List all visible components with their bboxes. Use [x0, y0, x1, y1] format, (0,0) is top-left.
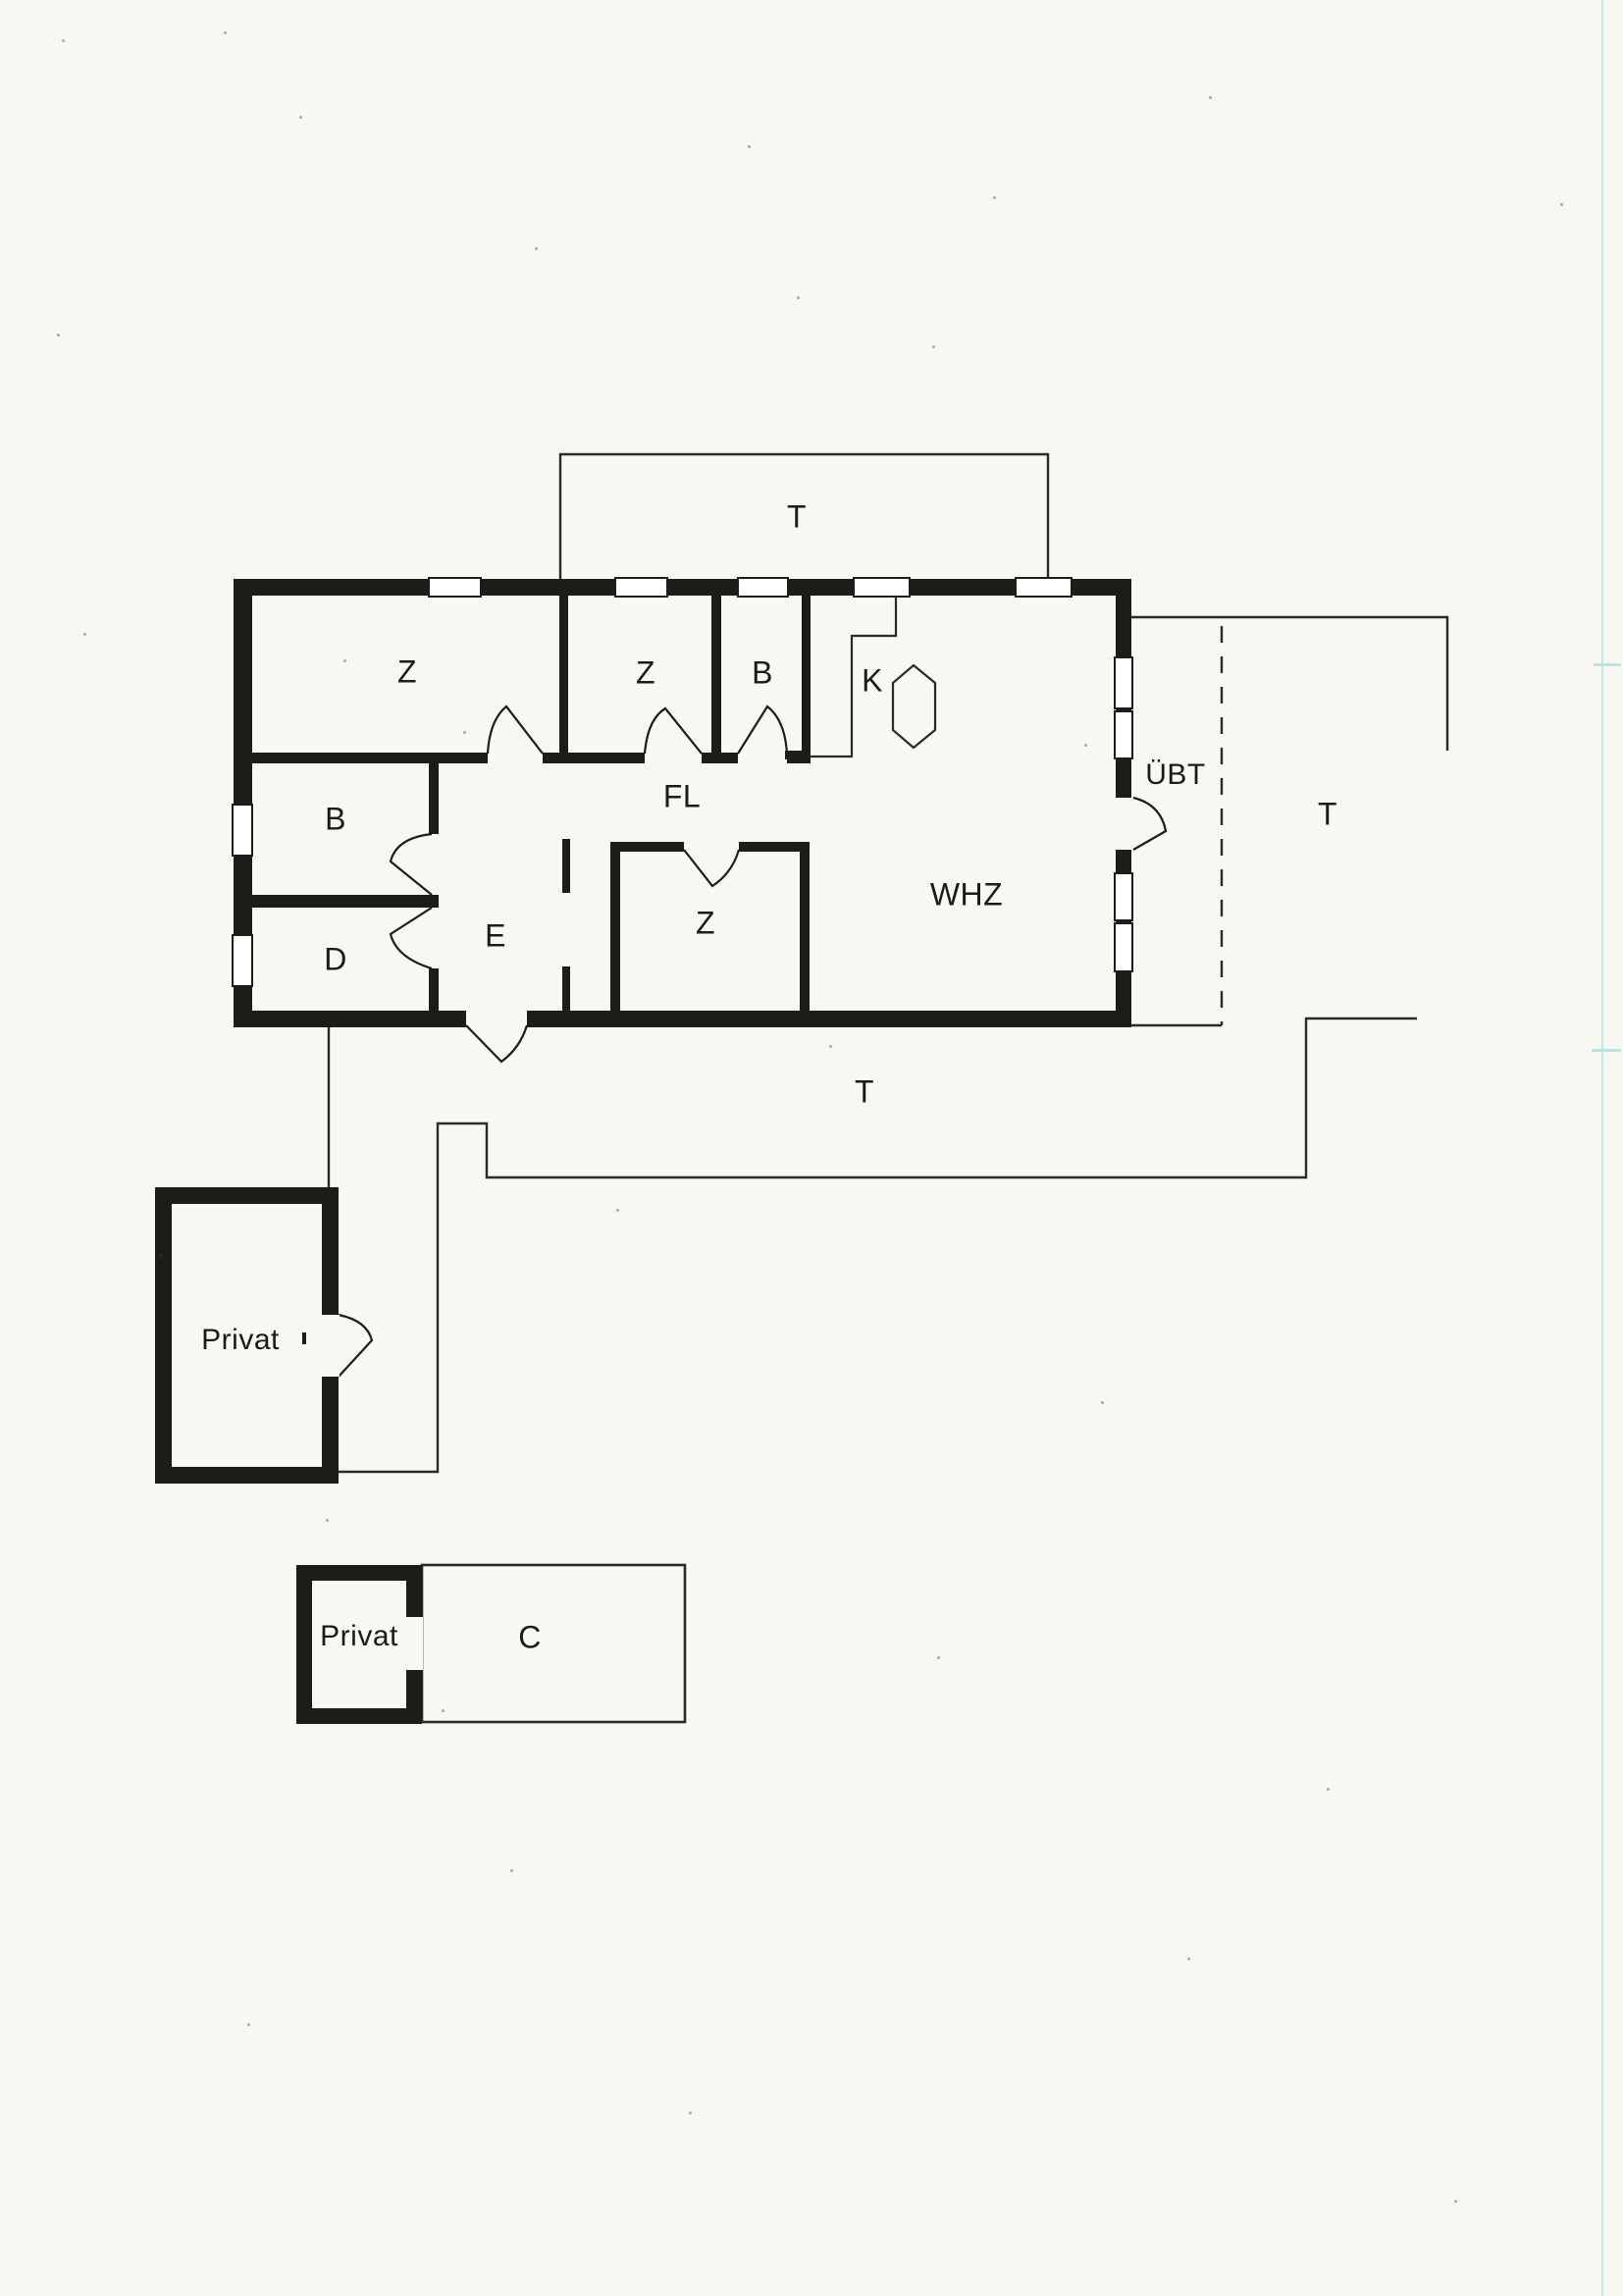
door-swing-d	[391, 908, 432, 968]
label-room-z3: Z	[696, 906, 715, 942]
wall-exterior-top	[234, 579, 1131, 596]
scan-speck	[1084, 744, 1087, 747]
wall-fl-corridor-seg3	[702, 753, 738, 763]
scan-speck	[326, 1519, 329, 1522]
door-swing-z3	[684, 850, 739, 886]
terrace-east-outline-top	[1131, 617, 1447, 751]
door-gap-entrance	[466, 1010, 527, 1028]
scan-speck	[1187, 1957, 1190, 1960]
label-terrace-east: T	[1318, 797, 1337, 833]
wall-z3-top-seg1	[610, 842, 684, 852]
label-entry-e: E	[485, 918, 506, 955]
window-right-upper-2	[1115, 711, 1132, 758]
door-swing-uebt	[1133, 798, 1166, 850]
wall-entry-stub-lower	[562, 966, 570, 1011]
scan-speck	[62, 39, 65, 42]
wall-fl-corridor-seg1	[252, 753, 488, 763]
scan-speck	[689, 2112, 692, 2114]
wall-z3-left	[610, 842, 620, 1011]
scan-speck	[510, 1869, 513, 1872]
privat-left-stray-mark	[302, 1332, 306, 1344]
window-right-lower-1	[1115, 873, 1132, 920]
scan-speck	[616, 1209, 619, 1212]
wall-d-east	[429, 968, 439, 1011]
wall-z3-right	[800, 842, 810, 1011]
scan-speck	[797, 296, 800, 299]
scan-speck	[442, 1709, 445, 1712]
wall-fl-corridor-seg2	[543, 753, 645, 763]
scan-speck	[1209, 96, 1212, 99]
door-swing-bath-top	[738, 706, 787, 754]
scan-artifact-cyan-tick-2	[1592, 1049, 1621, 1052]
window-right-lower-2	[1115, 923, 1132, 971]
door-swing-privat-left	[339, 1315, 372, 1377]
scan-speck	[343, 659, 346, 662]
label-outbuilding-left: Privat	[201, 1324, 280, 1357]
window-right-upper-1	[1115, 657, 1132, 708]
window-top-bath	[738, 578, 788, 597]
scan-speck	[299, 116, 302, 119]
scan-speck	[748, 145, 751, 148]
window-top-whz	[1016, 578, 1072, 597]
carport-c-outline	[422, 1565, 685, 1722]
window-left-bath	[233, 805, 252, 856]
wall-bathleft-east	[429, 753, 439, 834]
floor-plan-drawing	[0, 0, 1623, 2296]
label-room-z2: Z	[636, 655, 655, 692]
label-door-uebt: ÜBT	[1145, 758, 1206, 792]
door-gap-uebt	[1114, 798, 1133, 850]
label-room-z1: Z	[397, 654, 417, 691]
scan-speck	[1101, 1401, 1104, 1404]
scan-speck	[463, 731, 466, 734]
wall-kitchen-left	[802, 596, 811, 751]
label-room-d: D	[324, 942, 347, 978]
scan-speck	[535, 247, 538, 250]
window-top-kitchen	[854, 578, 910, 597]
label-hall-fl: FL	[663, 779, 701, 815]
wall-kitchen-left-stub	[785, 751, 811, 759]
label-terrace-top: T	[787, 499, 807, 536]
privat-lower-door-gap	[405, 1617, 423, 1670]
wall-z3-top-seg2	[739, 842, 810, 852]
wall-bathleft-d-divider	[252, 895, 439, 908]
window-left-d	[233, 935, 252, 986]
label-outbuilding-lower: Privat	[320, 1620, 398, 1653]
label-terrace-south: T	[855, 1074, 874, 1111]
label-carport-c: C	[518, 1620, 542, 1656]
privat-left-door-gap	[321, 1315, 340, 1377]
kitchen-counter-outline	[811, 596, 896, 757]
wall-exterior-bottom	[234, 1011, 1131, 1027]
scan-speck	[1560, 203, 1563, 206]
stove-hexagon-symbol	[893, 665, 935, 748]
scan-speck	[1454, 2200, 1457, 2203]
door-swing-z1	[488, 706, 543, 754]
door-swing-bath-left	[391, 834, 432, 895]
wall-z1-z2-divider	[559, 596, 568, 753]
scan-speck	[1327, 1788, 1330, 1791]
scan-speck	[83, 633, 86, 636]
label-room-bath-left: B	[325, 802, 346, 838]
scan-speck	[224, 31, 227, 34]
scanned-page: T Z Z B K ÜBT T B FL D E Z WHZ T Privat …	[0, 0, 1623, 2296]
window-top-z1	[429, 578, 481, 597]
scan-speck	[247, 2023, 250, 2026]
scan-speck	[829, 1045, 832, 1048]
scan-speck	[937, 1656, 940, 1659]
door-swing-entrance	[466, 1025, 527, 1062]
wall-entry-stub-upper	[562, 839, 570, 893]
window-top-z2	[615, 578, 667, 597]
scan-artifact-cyan-tick-1	[1594, 663, 1621, 666]
scan-speck	[993, 196, 996, 199]
label-room-bath-top: B	[752, 655, 773, 692]
terrace-south-outline	[339, 1018, 1417, 1472]
scan-speck	[932, 345, 935, 348]
door-swing-z2	[645, 708, 702, 754]
label-room-whz: WHZ	[930, 877, 1003, 913]
scan-artifact-cyan-line	[1601, 0, 1603, 2296]
wall-z2-bath-divider	[711, 596, 721, 753]
scan-speck	[159, 1254, 162, 1257]
scan-speck	[57, 334, 60, 337]
label-room-kitchen: K	[862, 663, 883, 700]
